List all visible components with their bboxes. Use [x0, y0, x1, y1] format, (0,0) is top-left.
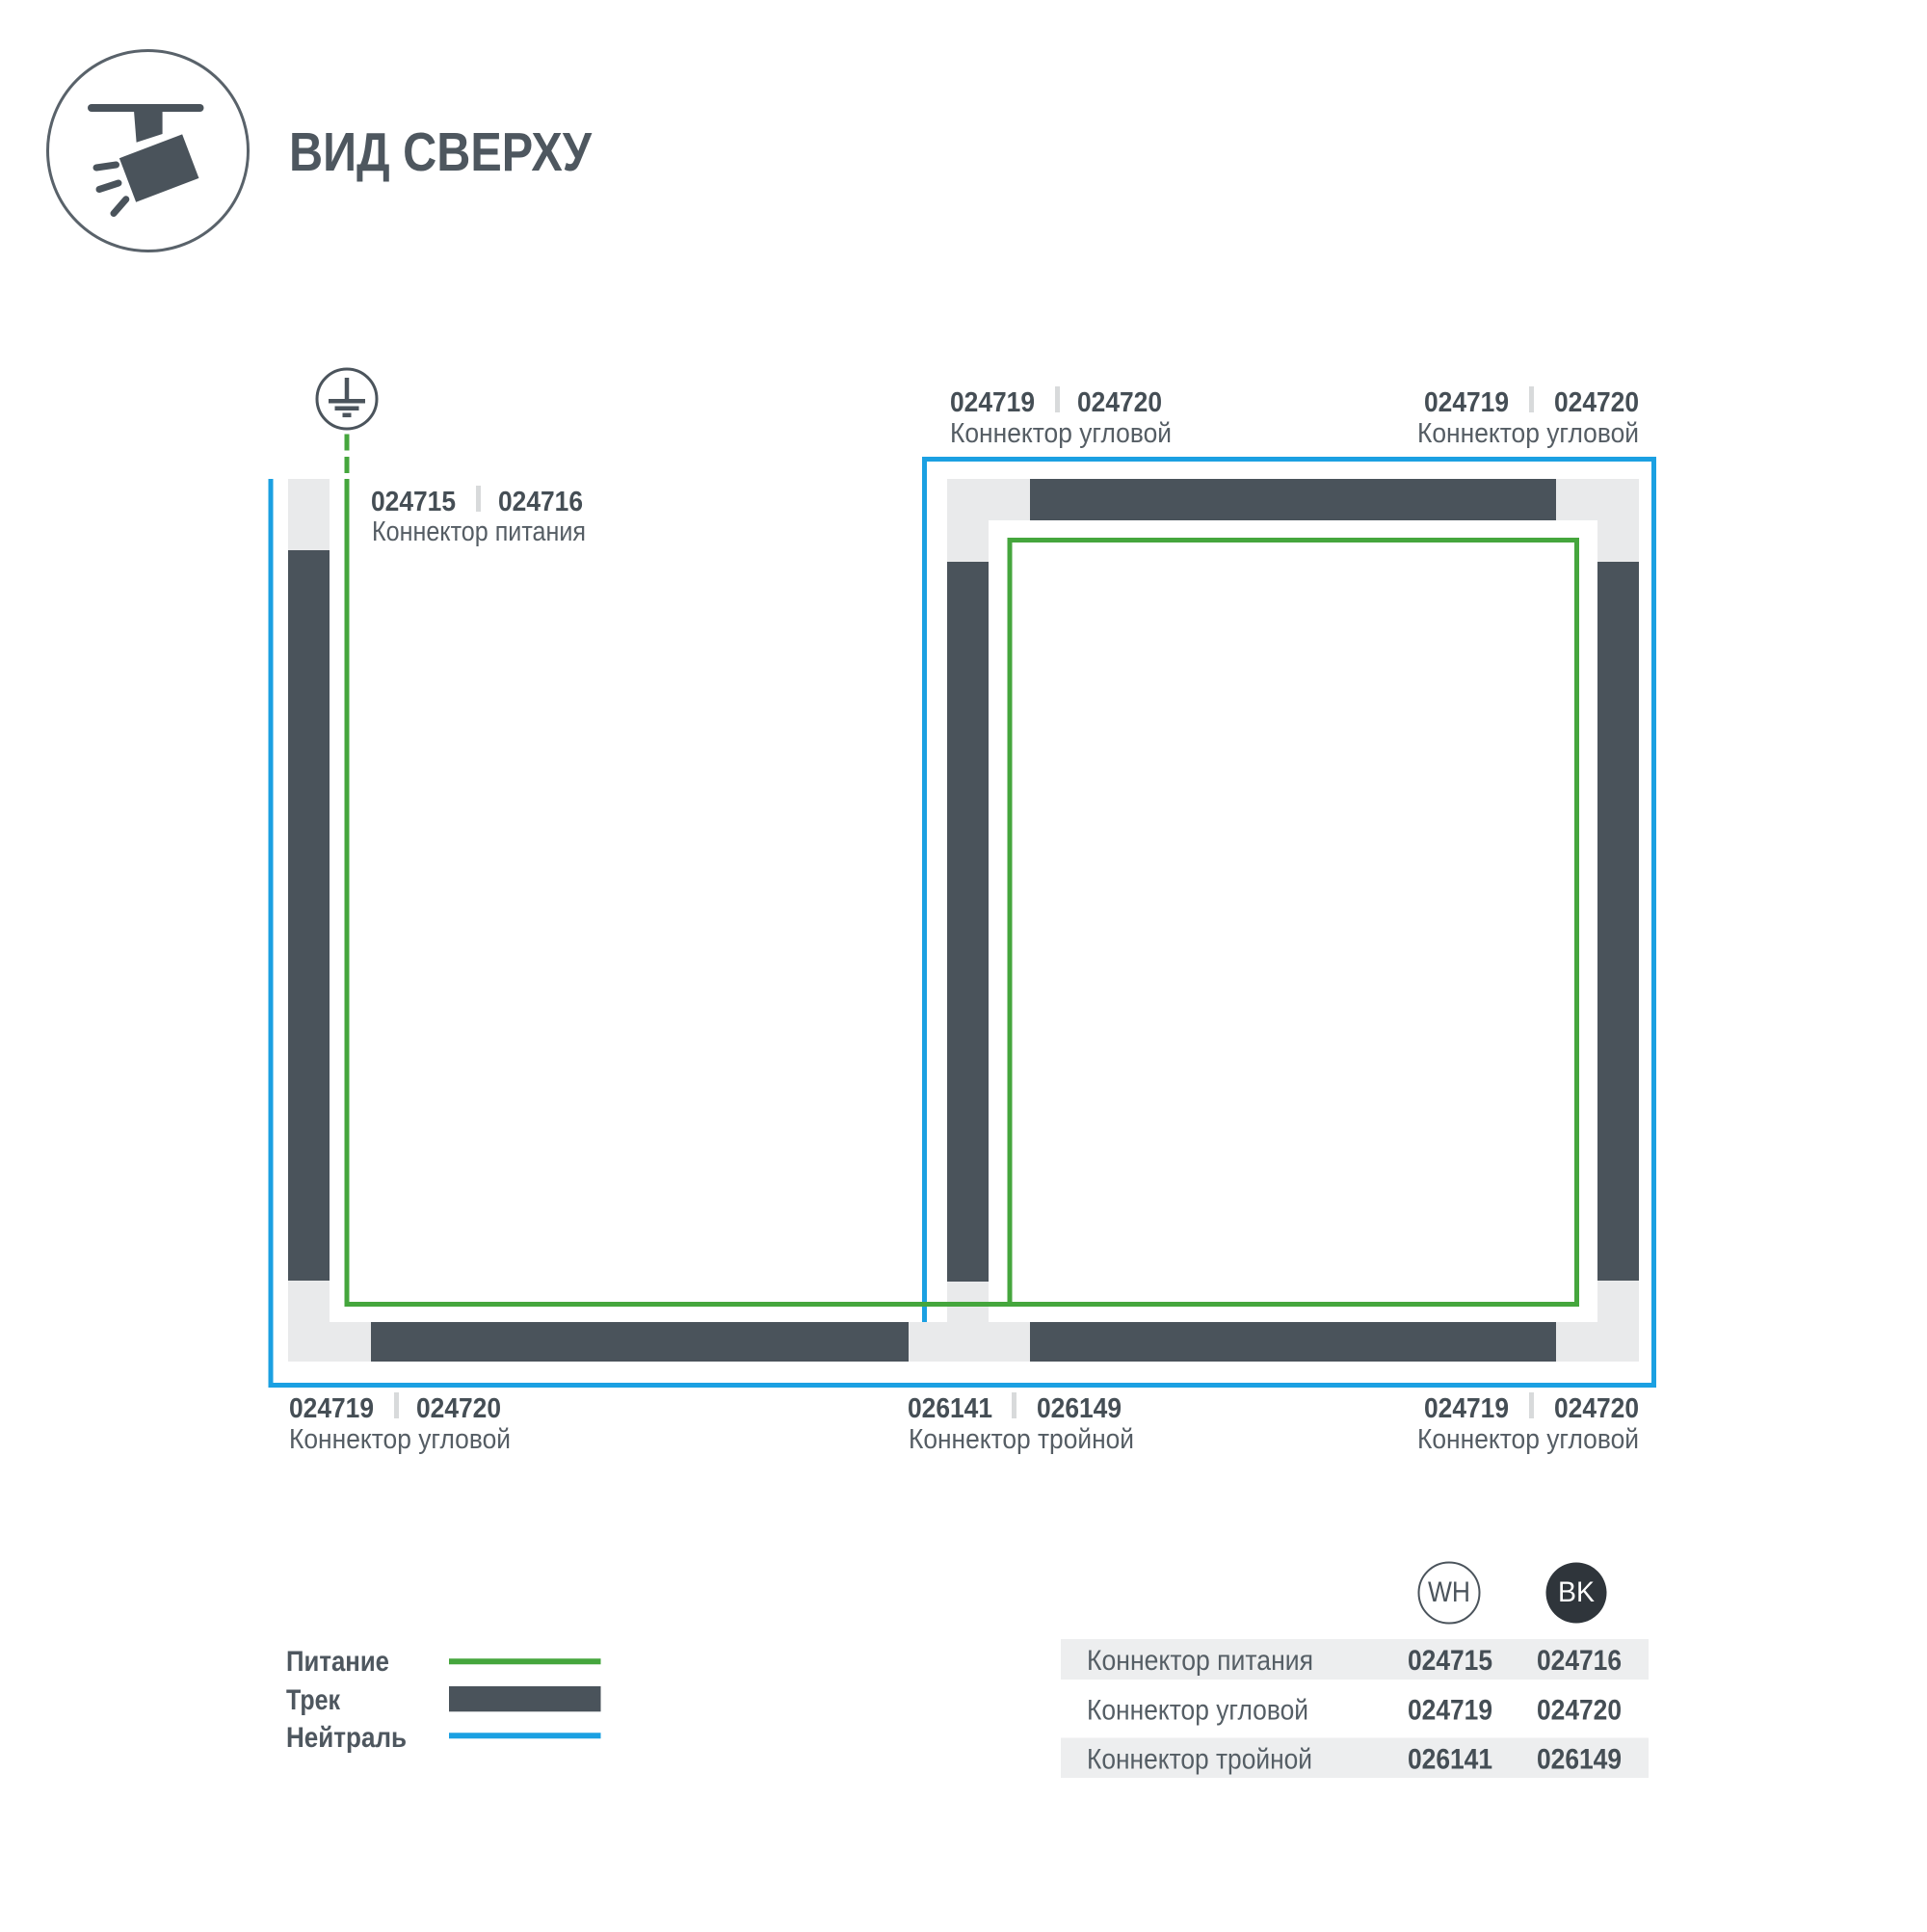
svg-text:Коннектор тройной: Коннектор тройной — [909, 1424, 1134, 1455]
svg-text:Коннектор питания: Коннектор питания — [372, 516, 586, 547]
svg-text:BK: BK — [1558, 1576, 1595, 1608]
svg-text:WH: WH — [1428, 1576, 1470, 1608]
svg-text:Коннектор угловой: Коннектор угловой — [1087, 1695, 1308, 1727]
svg-text:Коннектор угловой: Коннектор угловой — [950, 418, 1172, 449]
svg-text:ВИД СВЕРХУ: ВИД СВЕРХУ — [289, 121, 593, 182]
svg-text:Коннектор угловой: Коннектор угловой — [1417, 1424, 1639, 1455]
svg-text:026141: 026141 — [1408, 1744, 1492, 1776]
svg-text:Коннектор питания: Коннектор питания — [1087, 1645, 1313, 1677]
svg-text:Питание: Питание — [286, 1646, 389, 1678]
svg-text:024715: 024715 — [1408, 1645, 1492, 1677]
svg-text:024716: 024716 — [1537, 1645, 1622, 1677]
svg-text:024720: 024720 — [1537, 1695, 1622, 1727]
svg-text:024719: 024719 — [950, 387, 1035, 418]
svg-text:024720: 024720 — [416, 1393, 501, 1424]
svg-text:026149: 026149 — [1537, 1744, 1622, 1776]
svg-text:Коннектор угловой: Коннектор угловой — [1417, 418, 1639, 449]
svg-text:024720: 024720 — [1554, 387, 1639, 418]
svg-text:024719: 024719 — [1424, 1393, 1509, 1424]
svg-text:Трек: Трек — [286, 1684, 341, 1716]
svg-text:024719: 024719 — [1424, 387, 1509, 418]
svg-text:Коннектор угловой: Коннектор угловой — [289, 1424, 511, 1455]
svg-text:024719: 024719 — [1408, 1695, 1492, 1727]
svg-text:026149: 026149 — [1037, 1393, 1122, 1424]
svg-text:024720: 024720 — [1077, 387, 1162, 418]
svg-text:Коннектор тройной: Коннектор тройной — [1087, 1744, 1312, 1776]
svg-text:Нейтраль: Нейтраль — [286, 1722, 407, 1754]
svg-text:024720: 024720 — [1554, 1393, 1639, 1424]
svg-text:024716: 024716 — [498, 487, 583, 517]
svg-text:024719: 024719 — [289, 1393, 374, 1424]
svg-text:026141: 026141 — [908, 1393, 992, 1424]
svg-text:024715: 024715 — [371, 487, 456, 517]
